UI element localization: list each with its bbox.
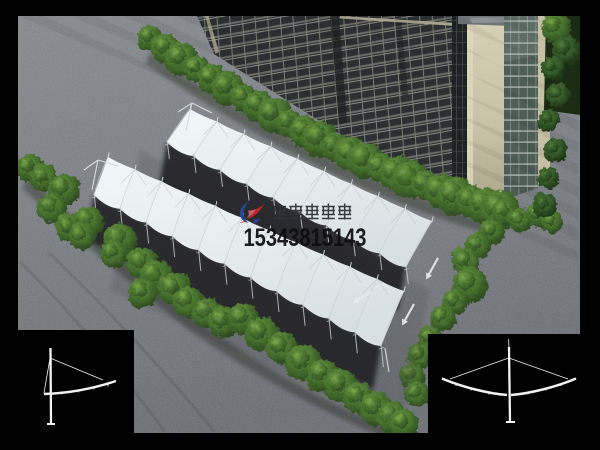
svg-text:15343815143: 15343815143 [244,224,367,252]
